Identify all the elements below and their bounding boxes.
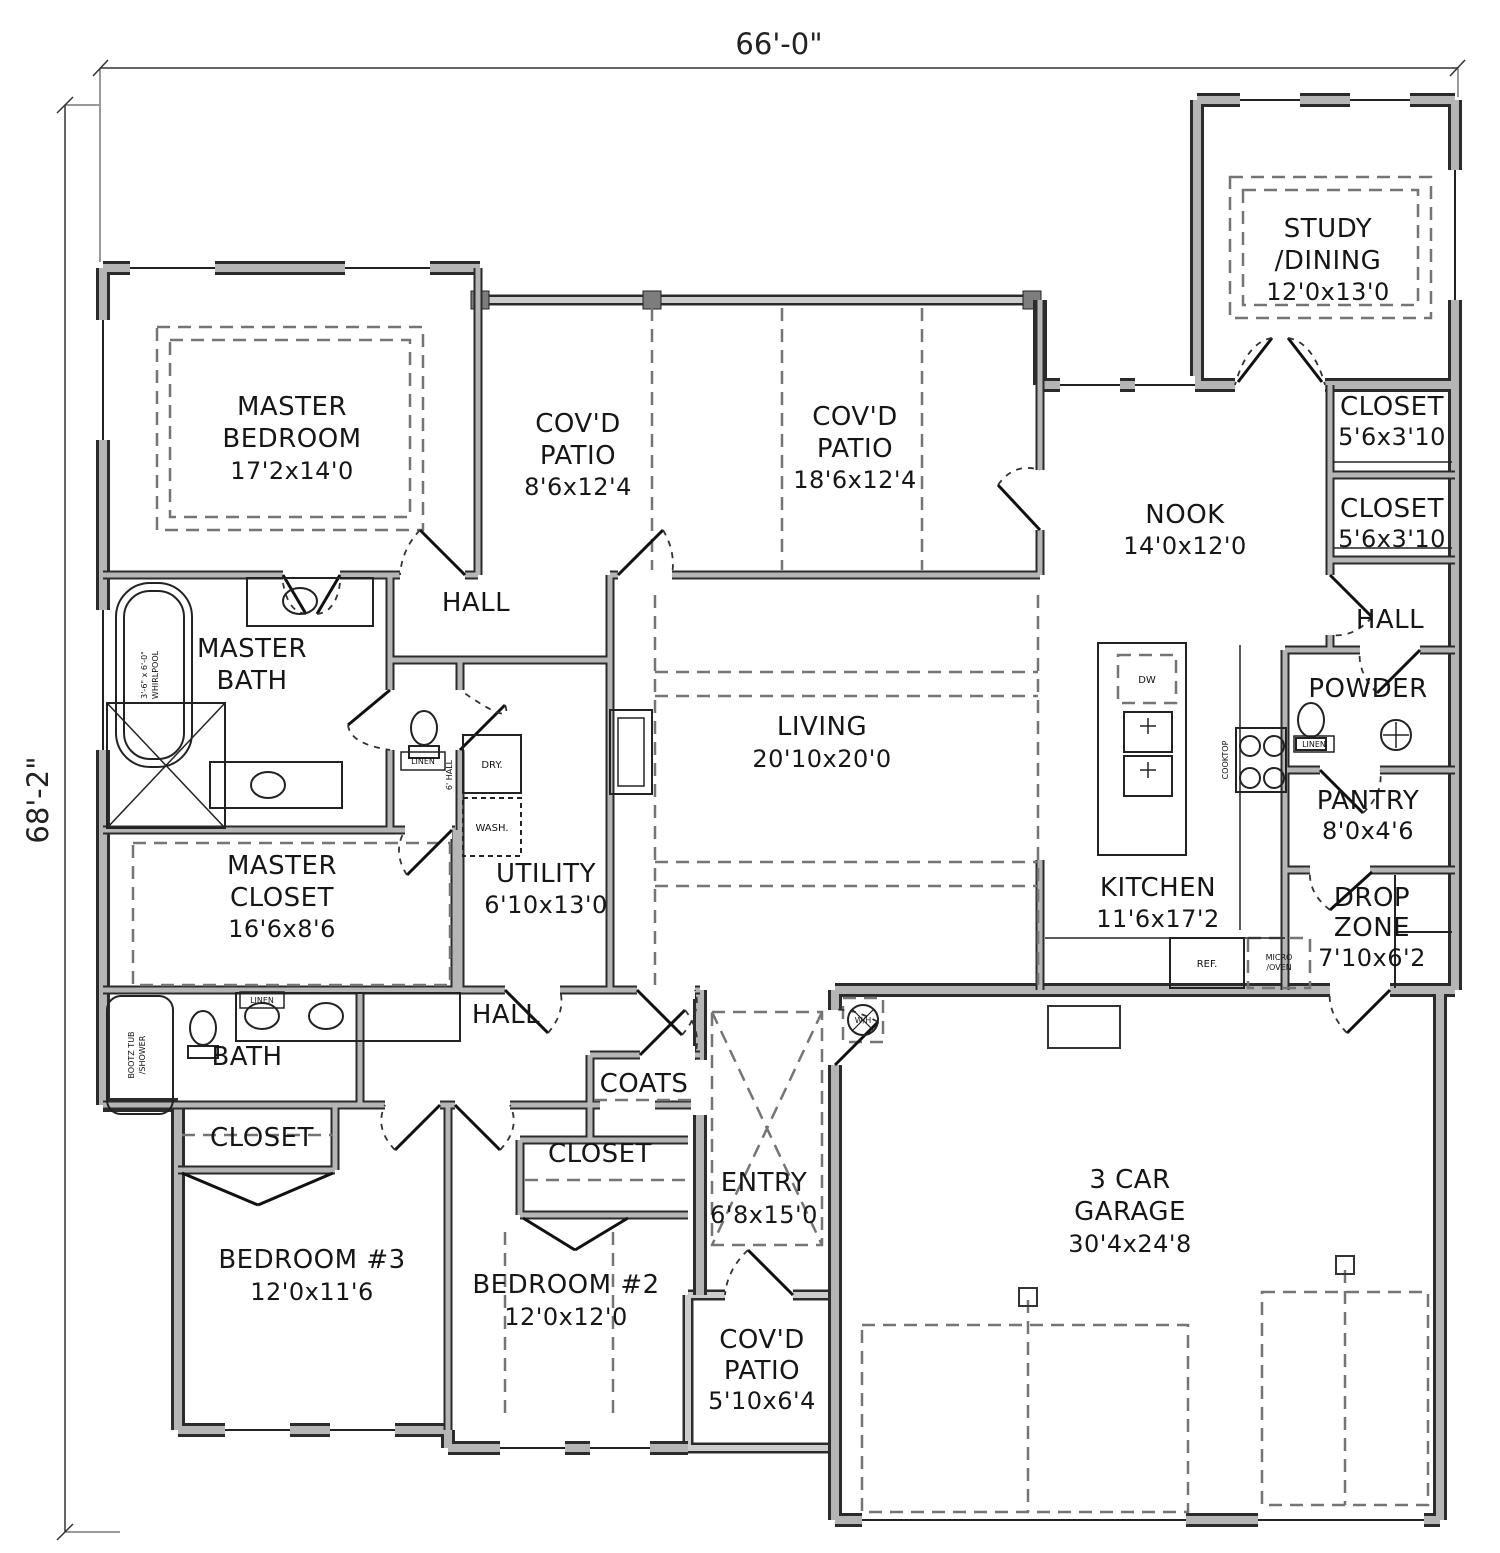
svg-text:12'0x11'6: 12'0x11'6 bbox=[250, 1278, 374, 1306]
micro-oven-label: MICRO bbox=[1266, 953, 1293, 962]
linen-master-label: LINEN bbox=[411, 757, 435, 766]
svg-text:PATIO: PATIO bbox=[540, 441, 616, 471]
label-powder: POWDER bbox=[1308, 674, 1427, 704]
svg-text:14'0x12'0: 14'0x12'0 bbox=[1123, 532, 1247, 560]
label-study-dining: STUDY bbox=[1284, 214, 1372, 244]
cooktop-label: COOKTOP bbox=[1221, 740, 1230, 779]
svg-text:GARAGE: GARAGE bbox=[1074, 1197, 1186, 1227]
small-hall-label: 6' HALL bbox=[445, 759, 454, 790]
top-dimension-label: 66'-0" bbox=[735, 27, 822, 61]
label-closet-upper: CLOSET bbox=[1340, 392, 1444, 422]
label-covd-patio-left: COV'D bbox=[535, 409, 621, 439]
label-master-bedroom: MASTER bbox=[237, 392, 347, 422]
washer-label: WASH. bbox=[475, 823, 508, 834]
svg-text:/OVEN: /OVEN bbox=[1266, 963, 1291, 972]
floor-plan: 66'-0" 68'-2" bbox=[0, 0, 1500, 1553]
label-hall-middle: HALL bbox=[472, 1000, 540, 1030]
svg-text:12'0x12'0: 12'0x12'0 bbox=[504, 1303, 628, 1331]
svg-text:5'6x3'10: 5'6x3'10 bbox=[1338, 423, 1446, 451]
garage-post-markers bbox=[1019, 1006, 1354, 1306]
svg-text:CLOSET: CLOSET bbox=[230, 883, 334, 913]
svg-text:6'10x13'0: 6'10x13'0 bbox=[484, 891, 608, 919]
label-bedroom3: BEDROOM #3 bbox=[218, 1245, 405, 1275]
label-entry: ENTRY bbox=[721, 1168, 808, 1198]
label-master-closet: MASTER bbox=[227, 851, 337, 881]
windows bbox=[103, 100, 1455, 1520]
svg-text:/DINING: /DINING bbox=[1275, 246, 1382, 276]
label-nook: NOOK bbox=[1145, 500, 1225, 530]
label-pantry: PANTRY bbox=[1317, 786, 1419, 816]
svg-text:8'6x12'4: 8'6x12'4 bbox=[524, 473, 632, 501]
label-bath: BATH bbox=[211, 1042, 282, 1072]
dimension-lines bbox=[57, 60, 1465, 1540]
fireplace bbox=[610, 710, 652, 794]
svg-text:7'10x6'2: 7'10x6'2 bbox=[1318, 944, 1426, 972]
room-labels: MASTER BEDROOM 17'2x14'0 COV'D PATIO 8'6… bbox=[197, 214, 1446, 1415]
whirlpool-label: 3'-6" x 6'-0" bbox=[140, 651, 149, 699]
svg-text:5'6x3'10: 5'6x3'10 bbox=[1338, 525, 1446, 553]
svg-text:8'0x4'6: 8'0x4'6 bbox=[1322, 817, 1414, 845]
svg-text:18'6x12'4: 18'6x12'4 bbox=[793, 466, 917, 494]
svg-text:11'6x17'2: 11'6x17'2 bbox=[1096, 905, 1220, 933]
water-heater-label: W/H bbox=[855, 1016, 872, 1025]
ref-label: REF. bbox=[1197, 959, 1218, 970]
label-closet-bedroom3: CLOSET bbox=[210, 1123, 314, 1153]
label-drop-zone: DROP bbox=[1334, 883, 1410, 913]
label-master-bath: MASTER bbox=[197, 634, 307, 664]
dryer-label: DRY. bbox=[481, 760, 502, 771]
svg-text:12'0x13'0: 12'0x13'0 bbox=[1266, 278, 1390, 306]
label-living: LIVING bbox=[777, 712, 867, 742]
svg-text:PATIO: PATIO bbox=[724, 1356, 800, 1386]
label-hall-upper: HALL bbox=[442, 588, 510, 618]
left-dimension-label: 68'-2" bbox=[21, 756, 55, 843]
wall-openings bbox=[103, 100, 1455, 1520]
linen-bath-label: LINEN bbox=[250, 996, 274, 1005]
label-bedroom2: BEDROOM #2 bbox=[472, 1270, 659, 1300]
svg-text:30'4x24'8: 30'4x24'8 bbox=[1068, 1230, 1192, 1258]
svg-text:17'2x14'0: 17'2x14'0 bbox=[230, 457, 354, 485]
toilet-master bbox=[411, 711, 437, 745]
label-utility: UTILITY bbox=[496, 859, 596, 889]
linen-powder-label: LINEN bbox=[1302, 740, 1326, 749]
label-kitchen: KITCHEN bbox=[1100, 873, 1216, 903]
dw-label: DW bbox=[1138, 675, 1156, 686]
svg-text:5'10x6'4: 5'10x6'4 bbox=[708, 1387, 816, 1415]
svg-text:ZONE: ZONE bbox=[1334, 913, 1410, 943]
svg-text:BATH: BATH bbox=[216, 666, 287, 696]
exterior-walls bbox=[103, 100, 1455, 1520]
toilet-bath bbox=[190, 1011, 216, 1045]
svg-text:16'6x8'6: 16'6x8'6 bbox=[228, 915, 336, 943]
floor-plan-svg: 66'-0" 68'-2" bbox=[0, 0, 1500, 1553]
toilet-powder bbox=[1298, 703, 1324, 737]
bootz-label: BOOTZ TUB bbox=[127, 1031, 136, 1078]
label-coats: COATS bbox=[600, 1069, 689, 1099]
label-covd-patio-front: COV'D bbox=[719, 1325, 805, 1355]
svg-text:/SHOWER: /SHOWER bbox=[138, 1035, 147, 1074]
label-closet-bedroom2: CLOSET bbox=[548, 1139, 652, 1169]
label-hall-right: HALL bbox=[1356, 605, 1424, 635]
fixtures bbox=[107, 462, 1452, 1114]
svg-text:PATIO: PATIO bbox=[817, 434, 893, 464]
label-garage: 3 CAR bbox=[1089, 1165, 1170, 1195]
svg-text:20'10x20'0: 20'10x20'0 bbox=[752, 745, 891, 773]
svg-text:WHIRLPOOL: WHIRLPOOL bbox=[151, 650, 160, 699]
svg-text:6'8x15'0: 6'8x15'0 bbox=[710, 1201, 818, 1229]
svg-text:BEDROOM: BEDROOM bbox=[222, 424, 361, 454]
label-covd-patio-right: COV'D bbox=[812, 402, 898, 432]
label-closet-lower: CLOSET bbox=[1340, 494, 1444, 524]
